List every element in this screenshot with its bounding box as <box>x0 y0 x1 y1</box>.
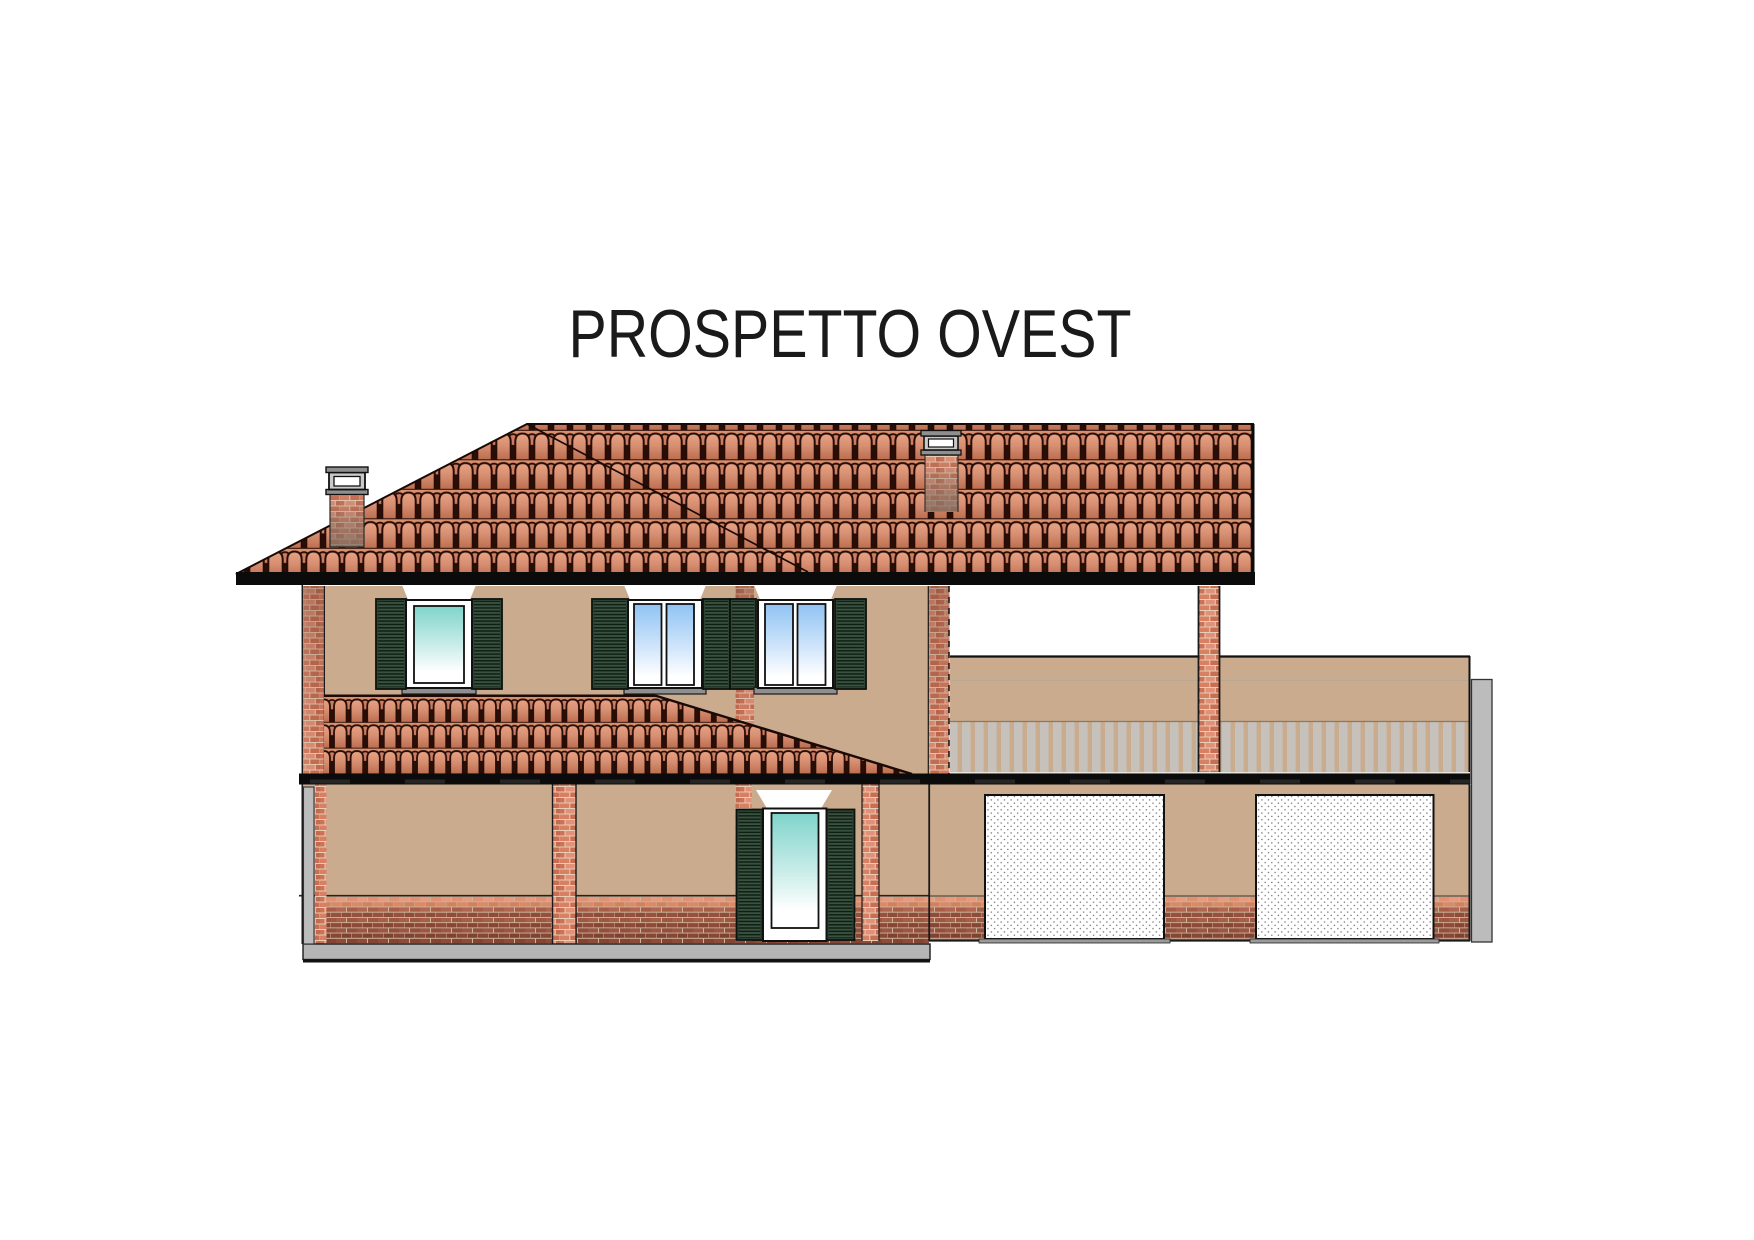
svg-text:PROSPETTO OVEST: PROSPETTO OVEST <box>569 296 1132 372</box>
